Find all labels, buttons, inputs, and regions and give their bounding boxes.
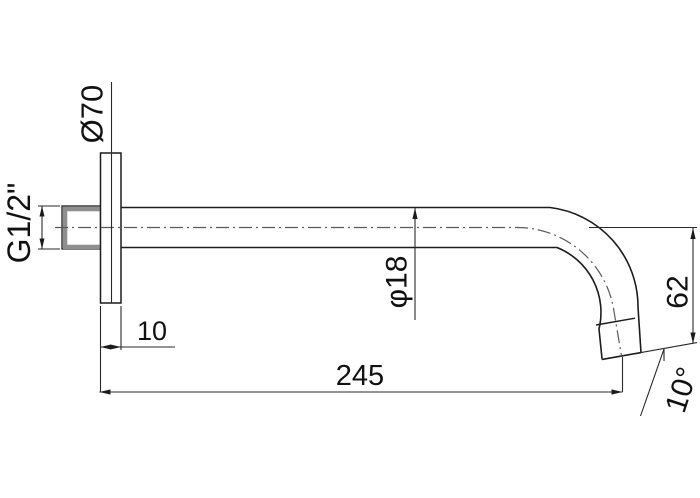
shower-arm-technical-drawing: Ø70 G1/2" 10 245 φ18 62 10° [0, 0, 700, 498]
pipe-inner-edge [121, 248, 602, 360]
label-flange-diameter: Ø70 [75, 85, 110, 144]
label-flange-offset: 10 [137, 316, 167, 346]
drawing-canvas: Ø70 G1/2" 10 245 φ18 62 10° [0, 0, 700, 498]
label-tip-angle: 10° [659, 363, 700, 416]
arrow-right-icon [111, 345, 122, 350]
arrow-up-icon [690, 228, 695, 239]
arrow-left-icon [101, 345, 112, 350]
label-thread-size: G1/2" [1, 183, 37, 264]
thread-shading-top [63, 207, 100, 212]
arrow-up-icon [412, 208, 417, 219]
arrow-left-icon [100, 389, 111, 394]
label-pipe-diameter: φ18 [381, 256, 414, 309]
label-arm-length: 245 [336, 360, 384, 392]
arrow-right-icon [612, 389, 623, 394]
label-drop-height: 62 [662, 275, 695, 308]
arrow-down-icon [690, 333, 695, 344]
arrow-down-icon [40, 239, 45, 250]
arrow-up-icon [40, 206, 45, 217]
thread-shading-bottom [63, 245, 100, 250]
